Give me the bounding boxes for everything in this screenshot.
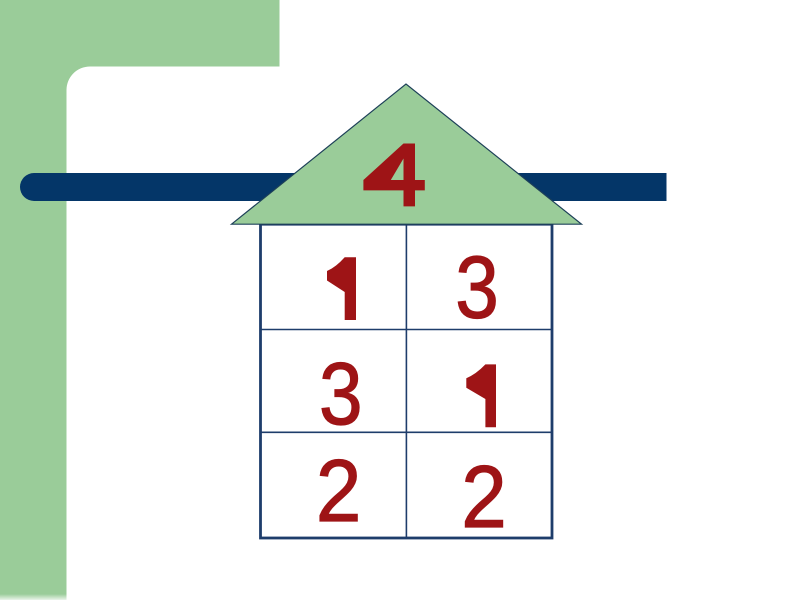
svg-text:2: 2 (316, 442, 362, 540)
svg-text:3: 3 (319, 345, 363, 443)
svg-text:3: 3 (455, 238, 499, 336)
svg-text:2: 2 (461, 448, 507, 546)
